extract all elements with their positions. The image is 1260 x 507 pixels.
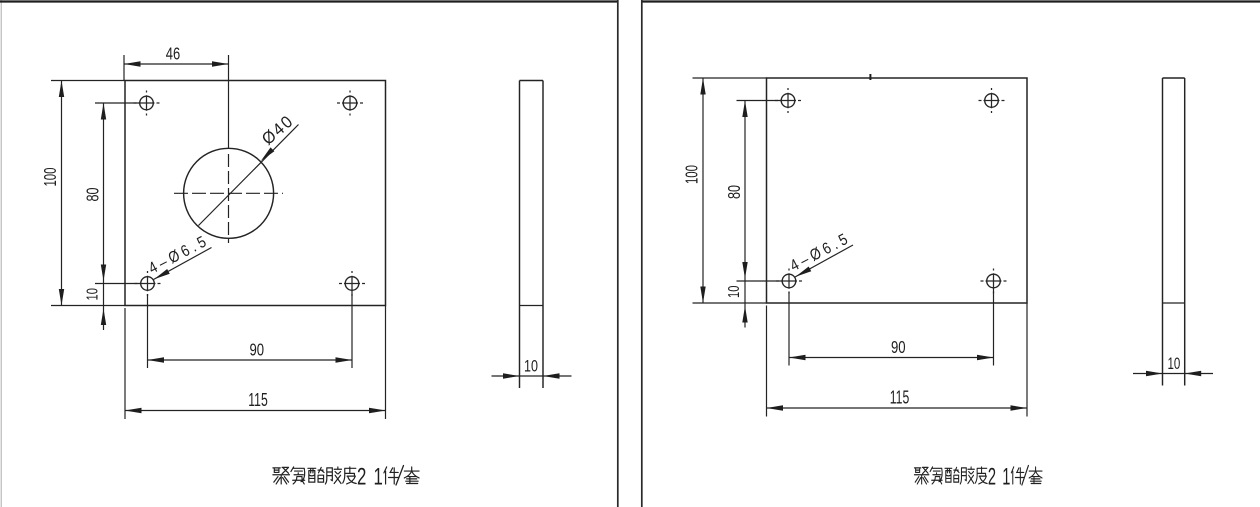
svg-text:90: 90 — [250, 341, 265, 360]
svg-text:Ø40: Ø40 — [258, 111, 298, 149]
svg-text:80: 80 — [725, 185, 745, 199]
svg-text:115: 115 — [890, 388, 910, 408]
svg-text:10: 10 — [1168, 355, 1181, 374]
svg-text:115: 115 — [248, 391, 268, 411]
svg-text:90: 90 — [891, 338, 906, 357]
svg-text:10: 10 — [724, 285, 743, 298]
svg-text:1: 1 — [374, 464, 383, 491]
svg-text:100: 100 — [682, 165, 702, 184]
svg-text:2: 2 — [357, 464, 366, 491]
svg-text:10: 10 — [524, 358, 538, 376]
svg-text:4–Ø6.5: 4–Ø6.5 — [788, 230, 854, 276]
svg-text:46: 46 — [166, 45, 181, 65]
svg-text:80: 80 — [83, 187, 103, 201]
svg-text:4–Ø6.5: 4–Ø6.5 — [146, 232, 212, 278]
svg-text:100: 100 — [40, 168, 60, 187]
svg-text:10: 10 — [82, 288, 101, 301]
